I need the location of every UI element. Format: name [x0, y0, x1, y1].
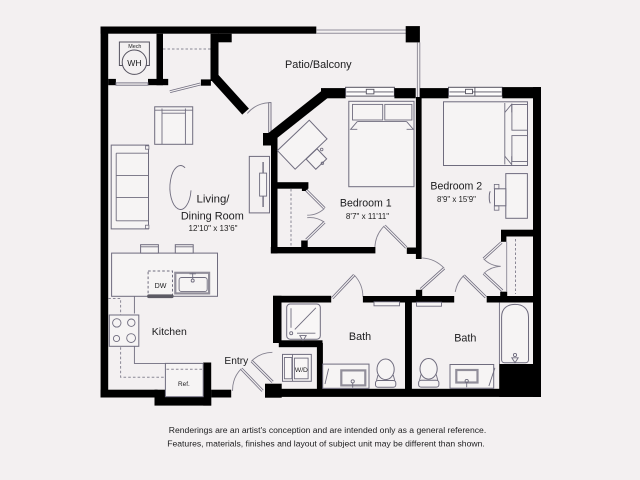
- svg-text:Bedroom 2: Bedroom 2: [430, 181, 482, 193]
- svg-text:8'9" x 15'9": 8'9" x 15'9": [437, 195, 476, 204]
- svg-text:Renderings are an artist's con: Renderings are an artist's conception an…: [169, 425, 486, 435]
- svg-text:Dining Room: Dining Room: [181, 211, 244, 223]
- svg-text:Kitchen: Kitchen: [152, 326, 187, 338]
- svg-text:DW: DW: [155, 282, 167, 290]
- svg-text:Bath: Bath: [349, 331, 371, 343]
- svg-text:Mech: Mech: [128, 44, 141, 50]
- svg-text:Features, materials, finishes: Features, materials, finishes and layout…: [167, 439, 485, 449]
- svg-text:Patio/Balcony: Patio/Balcony: [285, 59, 352, 71]
- svg-text:12'10" x 13'6": 12'10" x 13'6": [189, 224, 238, 233]
- svg-text:Bath: Bath: [454, 332, 476, 344]
- svg-text:Entry: Entry: [224, 356, 249, 367]
- svg-text:WH: WH: [127, 58, 141, 68]
- svg-text:W/D: W/D: [295, 367, 308, 374]
- svg-text:Ref.: Ref.: [178, 381, 190, 388]
- svg-text:Living/: Living/: [197, 194, 231, 206]
- svg-text:8'7" x 11'11": 8'7" x 11'11": [346, 212, 389, 221]
- svg-text:Bedroom 1: Bedroom 1: [340, 198, 392, 210]
